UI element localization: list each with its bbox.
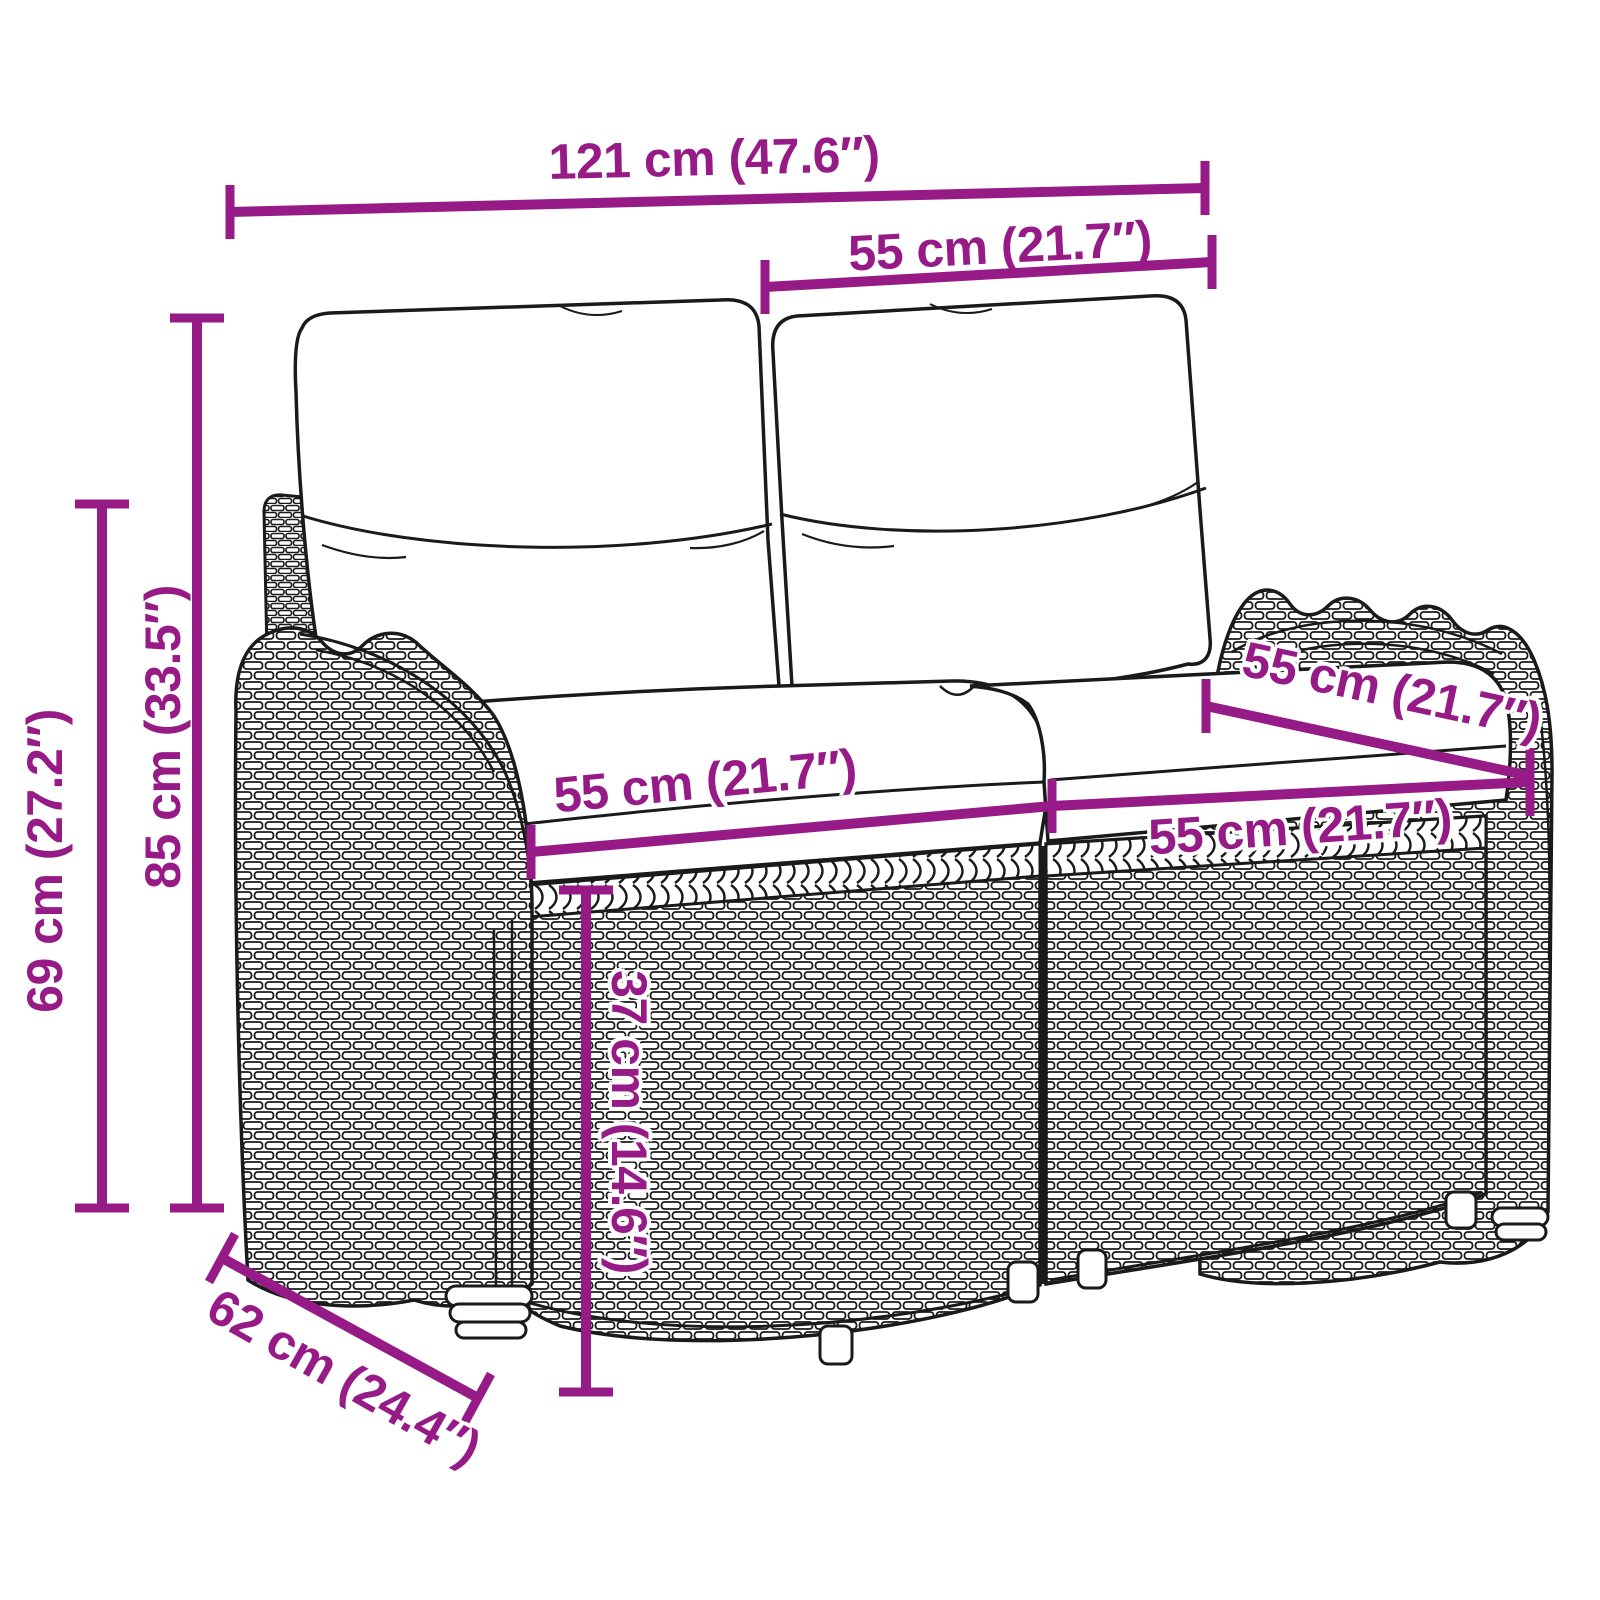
seat-box-left [516, 844, 1040, 1341]
dimension-diagram: 121 cm (47.6″) 55 cm (21.7″) 85 cm (33.5… [0, 0, 1600, 1600]
dim-label-armrest-height: 69 cm (27.2″) [20, 709, 70, 1013]
right-armrest-base [1492, 1208, 1548, 1240]
left-armrest [236, 628, 533, 1338]
seat-box-right [1046, 816, 1486, 1284]
dim-label-total-height: 85 cm (33.5″) [138, 585, 188, 889]
dim-label-seat-height: 37 cm (14.6″) [604, 970, 654, 1274]
dim-label-overall-width: 121 cm (47.6″) [548, 129, 880, 187]
dim-line-armrest-height [75, 504, 129, 1208]
back-cushion-right [773, 296, 1211, 692]
